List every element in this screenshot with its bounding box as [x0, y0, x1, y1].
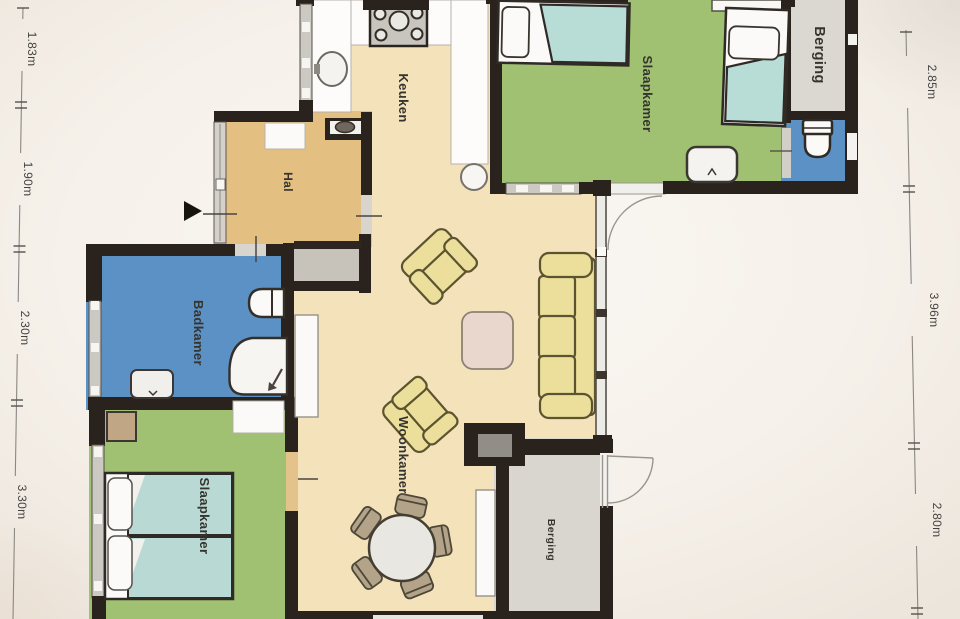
- svg-text:1.90m: 1.90m: [21, 162, 35, 197]
- svg-text:Berging: Berging: [811, 26, 827, 84]
- svg-text:2.85m: 2.85m: [925, 65, 939, 100]
- svg-text:Slaapkamer: Slaapkamer: [197, 478, 212, 555]
- svg-text:3.30m: 3.30m: [15, 485, 29, 520]
- svg-text:Woonkamer: Woonkamer: [396, 416, 411, 494]
- svg-text:3.96m: 3.96m: [927, 293, 941, 328]
- svg-text:1.83m: 1.83m: [25, 32, 39, 67]
- svg-text:2.80m: 2.80m: [930, 503, 944, 538]
- svg-text:Keuken: Keuken: [396, 73, 411, 122]
- svg-text:Hal: Hal: [281, 172, 295, 192]
- svg-text:2.30m: 2.30m: [18, 311, 32, 346]
- svg-text:Berging: Berging: [545, 519, 557, 561]
- svg-text:Badkamer: Badkamer: [191, 300, 206, 366]
- svg-text:Slaapkamer: Slaapkamer: [640, 56, 655, 133]
